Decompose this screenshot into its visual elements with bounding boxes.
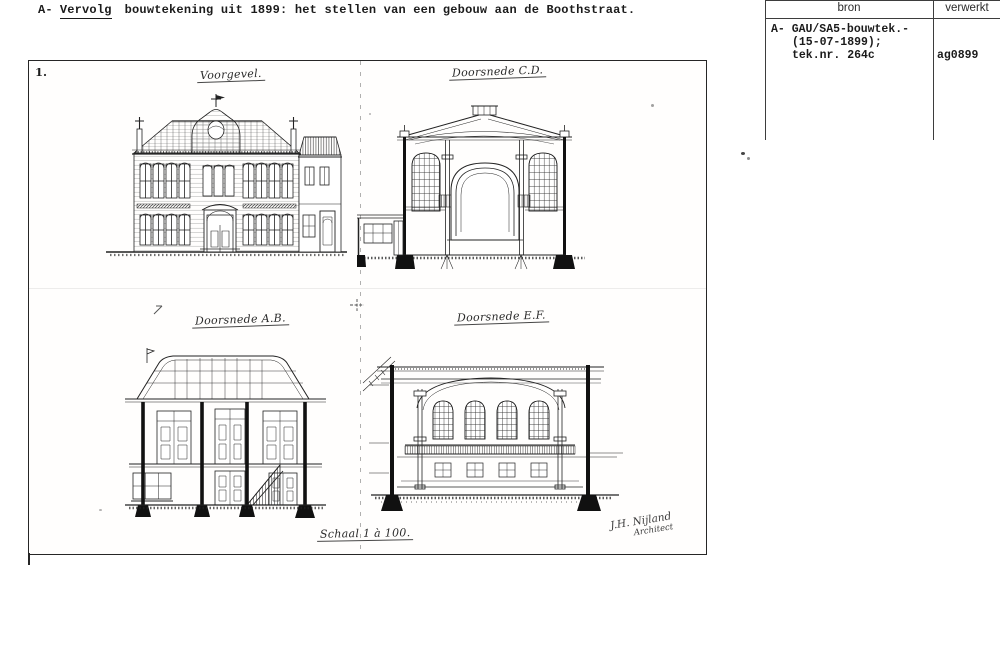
typed-header: A-Vervolgbouwtekening uit 1899: het stel…: [38, 3, 635, 17]
bron-entry-line3: tek.nr. 264c: [792, 49, 875, 62]
sheet-border-tail: [28, 553, 30, 565]
section-ab-linework: [125, 348, 326, 518]
table-border-top: [765, 0, 1000, 1]
scan-speck: [747, 157, 750, 160]
ef-upper-windows: [433, 401, 549, 439]
scan-speck: [651, 104, 654, 107]
cd-annex: [357, 215, 403, 267]
stray-pencil-mark: [152, 304, 164, 316]
scan-speck: [369, 113, 371, 115]
title-doorsnede-ab: Doorsnede A.B.: [192, 311, 289, 328]
table-header-rule: [765, 18, 1000, 19]
sheet-number: 1.: [35, 65, 47, 79]
drawing-sheet: 1. Voorgevel. Doorsnede C.D. Doorsnede A…: [28, 60, 707, 555]
bron-entry-line2: (15-07-1899);: [792, 36, 882, 49]
ab-upper-doors: [157, 409, 297, 464]
entrance-door: [200, 205, 240, 253]
doorsnede-ab-drawing: [123, 343, 328, 521]
voorgevel-drawing: [104, 91, 349, 266]
column-header-verwerkt: verwerkt: [934, 2, 1000, 14]
header-prefix: A-: [38, 3, 53, 17]
cd-central-arch: [447, 163, 523, 240]
register-table: bron verwerkt A- GAU/SA5-bouwtek.- (15-0…: [765, 0, 1000, 140]
doorsnede-cd-drawing: [357, 103, 585, 275]
title-voorgevel: Voorgevel.: [197, 67, 265, 83]
section-ef-linework: [363, 357, 623, 511]
table-border-left: [765, 0, 766, 140]
fold-line-horizontal: [29, 288, 706, 289]
gable-windows: [203, 165, 234, 196]
scan-speck: [741, 152, 745, 155]
header-emphasis: Vervolg: [60, 3, 112, 19]
scanned-archive-page: { "document": { "header": { "prefix": "A…: [0, 0, 1000, 654]
ef-lower-windows: [435, 463, 547, 477]
scale-note: Schaal 1 à 100.: [317, 526, 414, 542]
title-doorsnede-ef: Doorsnede E.F.: [454, 308, 549, 325]
table-divider: [933, 0, 934, 140]
annex: [298, 137, 342, 252]
registration-cross: [349, 298, 365, 312]
doorsnede-ef-drawing: [361, 353, 631, 525]
section-cd-linework: [357, 106, 585, 269]
header-text: bouwtekening uit 1899: het stellen van e…: [125, 3, 636, 17]
title-doorsnede-cd: Doorsnede C.D.: [449, 63, 547, 80]
ab-lower-elements: [131, 465, 297, 505]
verwerkt-entry: ag0899: [937, 49, 978, 62]
bron-entry-line1: A- GAU/SA5-bouwtek.-: [771, 23, 909, 36]
scan-speck: [99, 509, 102, 511]
ef-gallery: [397, 445, 587, 457]
column-header-bron: bron: [765, 2, 933, 14]
facade-linework: [106, 94, 347, 255]
